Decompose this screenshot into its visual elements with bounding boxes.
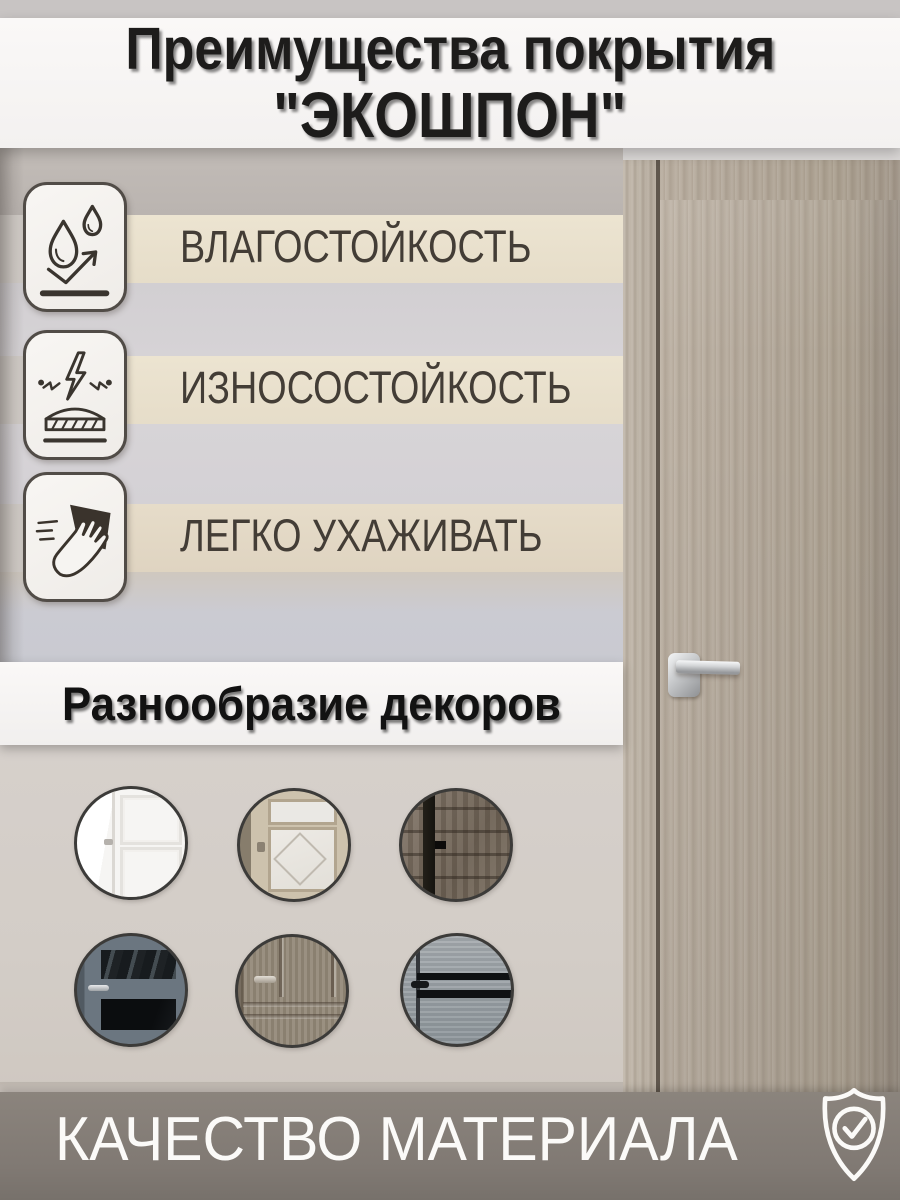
molding-line xyxy=(243,1014,346,1019)
decor-white-classic-door xyxy=(74,786,188,900)
wall-floor-edge xyxy=(0,1082,623,1092)
promo-banner-ecoshpon: Преимущества покрытия "ЭКОШПОН" ВЛАГОСТО… xyxy=(0,0,900,1200)
decor-oak-glass-door xyxy=(237,788,351,902)
door-handle xyxy=(435,841,446,849)
door-casing-left xyxy=(623,160,660,1092)
feature-icon-box-3 xyxy=(23,472,127,602)
door-leaf xyxy=(660,200,900,1092)
black-vertical-strip xyxy=(423,791,436,899)
door-casing-top xyxy=(623,160,900,204)
dark-glass-top xyxy=(101,950,177,979)
easy-clean-icon xyxy=(32,481,118,593)
door-handle xyxy=(88,985,110,991)
door-panel xyxy=(120,847,182,900)
feature-icon-box-2 xyxy=(23,330,127,460)
molding-line xyxy=(243,1002,346,1007)
feature-label-care: ЛЕГКО УХАЖИВАТЬ xyxy=(180,504,543,572)
decor-blue-glass-door xyxy=(74,933,188,1047)
shield-check-icon xyxy=(818,1086,890,1184)
feature-label-moisture: ВЛАГОСТОЙКОСТЬ xyxy=(180,215,532,283)
dark-glass-bottom xyxy=(101,999,177,1030)
page-title-line1: Преимущества покрытия xyxy=(125,20,775,79)
glass-insert-top xyxy=(268,799,337,826)
title-banner: Преимущества покрытия "ЭКОШПОН" xyxy=(0,18,900,148)
panel-line xyxy=(279,937,282,997)
black-glass-strip xyxy=(417,973,511,981)
decor-walnut-classic-door xyxy=(235,934,349,1048)
impact-resistance-icon xyxy=(32,339,118,451)
feature-icon-box-1 xyxy=(23,182,127,312)
decor-gray-loft-door xyxy=(400,933,514,1047)
door-handle xyxy=(411,981,429,988)
black-glass-strip xyxy=(417,990,511,998)
page-title-line2: "ЭКОШПОН" xyxy=(273,83,626,147)
decors-heading: Разнообразие декоров xyxy=(62,676,561,731)
quality-label: КАЧЕСТВО МАТЕРИАЛА xyxy=(55,1092,738,1187)
feature-label-wear: ИЗНОСОСТОЙКОСТЬ xyxy=(180,356,572,424)
decors-bar: Разнообразие декоров xyxy=(0,662,623,745)
door-photo xyxy=(623,148,900,1092)
water-drops-icon xyxy=(32,191,118,303)
panel-line xyxy=(331,937,334,997)
door-handle-lever xyxy=(676,660,740,675)
door-handle xyxy=(254,976,276,983)
door-panel xyxy=(120,795,182,844)
decor-rustic-dark-door xyxy=(399,788,513,902)
door-handle xyxy=(257,842,265,852)
door-handle xyxy=(104,839,113,845)
